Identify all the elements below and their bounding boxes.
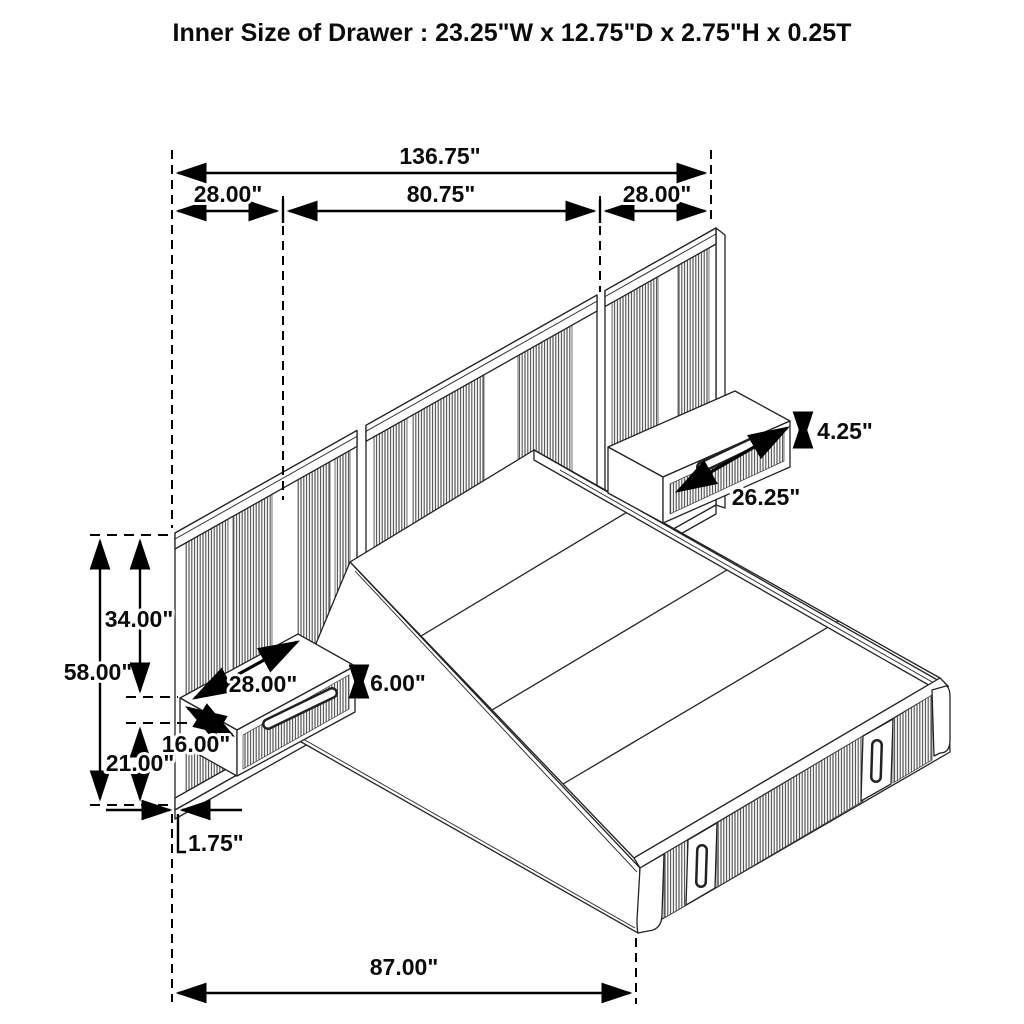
page-title: Inner Size of Drawer : 23.25"W x 12.75"D…: [173, 19, 852, 47]
dim-nightstand-width: 28.00": [229, 671, 297, 697]
bed-dimension-diagram: 136.75" 28.00" 80.75" 28.00" 58.00" 34.0…: [0, 0, 1024, 1024]
technical-drawing-page: 136.75" 28.00" 80.75" 28.00" 58.00" 34.0…: [0, 0, 1024, 1024]
dim-headboard-width: 80.75": [407, 181, 475, 207]
bed-corner-post-right: [932, 686, 950, 756]
footboard-handle-left: [701, 850, 702, 882]
dim-drawer-face-width: 26.25": [732, 484, 800, 510]
dim-nightstand-height: 6.00": [370, 670, 426, 696]
dim-left-panel-width: 28.00": [194, 181, 262, 207]
dim-drawer-face-height: 4.25": [817, 418, 873, 444]
dim-bed-length: 87.00": [370, 954, 438, 980]
dim-panel-thickness: 1.75": [188, 830, 244, 856]
dim-panel-top-to-shelf: 34.00": [105, 606, 173, 632]
dim-panel-height: 58.00": [64, 659, 132, 685]
dim-total-width: 136.75": [399, 143, 480, 169]
footboard-handle-right: [876, 745, 877, 777]
dim-right-panel-width: 28.00": [623, 181, 691, 207]
dim-nightstand-depth: 16.00": [162, 731, 230, 757]
